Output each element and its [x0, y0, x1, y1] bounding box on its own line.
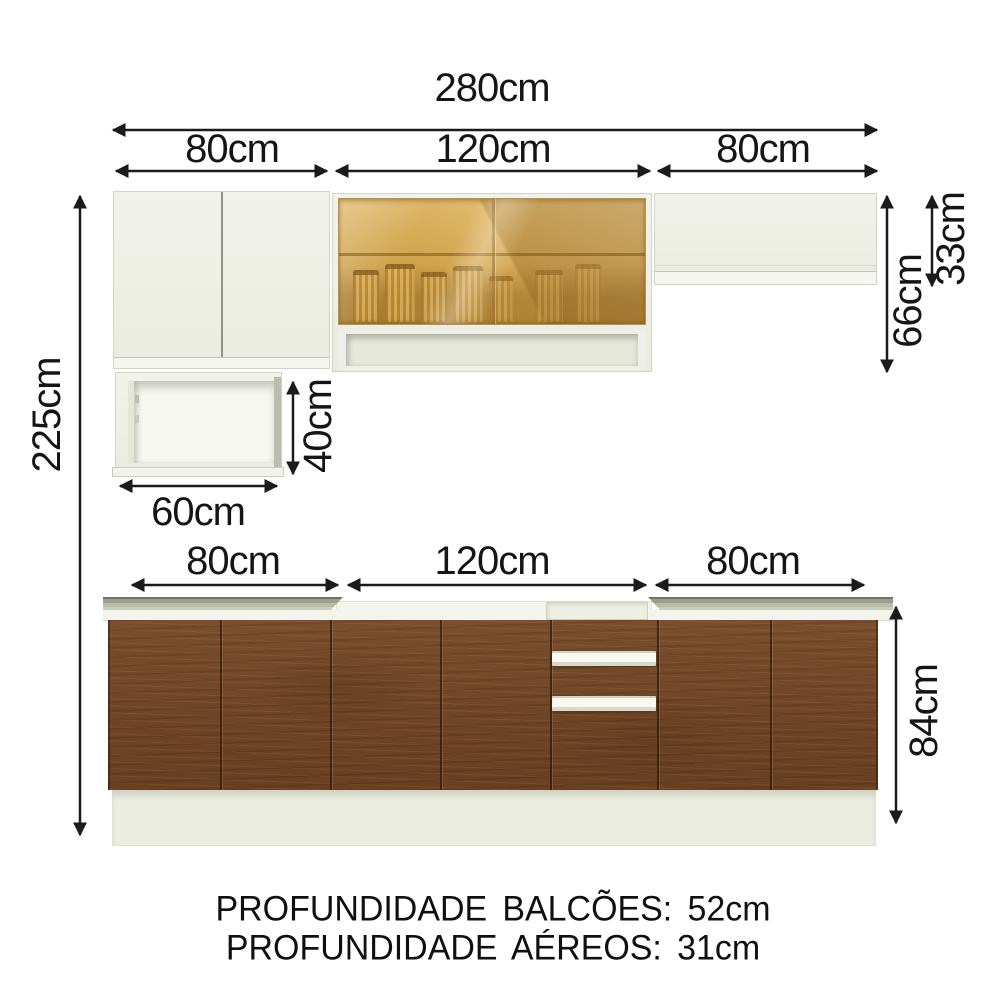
- upper-left-section-label: 80cm: [185, 129, 279, 169]
- open-shelf-height-label: 40cm: [298, 379, 338, 473]
- upper-right-section-label: 80cm: [716, 129, 810, 169]
- total-height-label: 225cm: [27, 357, 67, 472]
- depth-wall-cabinets-label: PROFUNDIDADE AÉREOS: 31cm: [226, 931, 760, 966]
- labels-layer: 280cm 80cm 120cm 80cm 225cm 66cm 33cm 40…: [0, 0, 1000, 1000]
- depth-counters-label: PROFUNDIDADE BALCÕES: 52cm: [216, 892, 771, 927]
- flap-height-label: 33cm: [931, 192, 971, 286]
- aerial-total-height-label: 66cm: [888, 254, 928, 348]
- upper-mid-section-label: 120cm: [435, 129, 550, 169]
- base-height-label: 84cm: [904, 664, 944, 758]
- base-mid-section-label: 120cm: [434, 541, 549, 581]
- open-shelf-width-label: 60cm: [151, 492, 245, 532]
- kitchen-dimension-diagram: 280cm 80cm 120cm 80cm 225cm 66cm 33cm 40…: [0, 0, 1000, 1000]
- base-right-section-label: 80cm: [706, 541, 800, 581]
- total-width-label: 280cm: [434, 68, 549, 108]
- base-left-section-label: 80cm: [186, 541, 280, 581]
